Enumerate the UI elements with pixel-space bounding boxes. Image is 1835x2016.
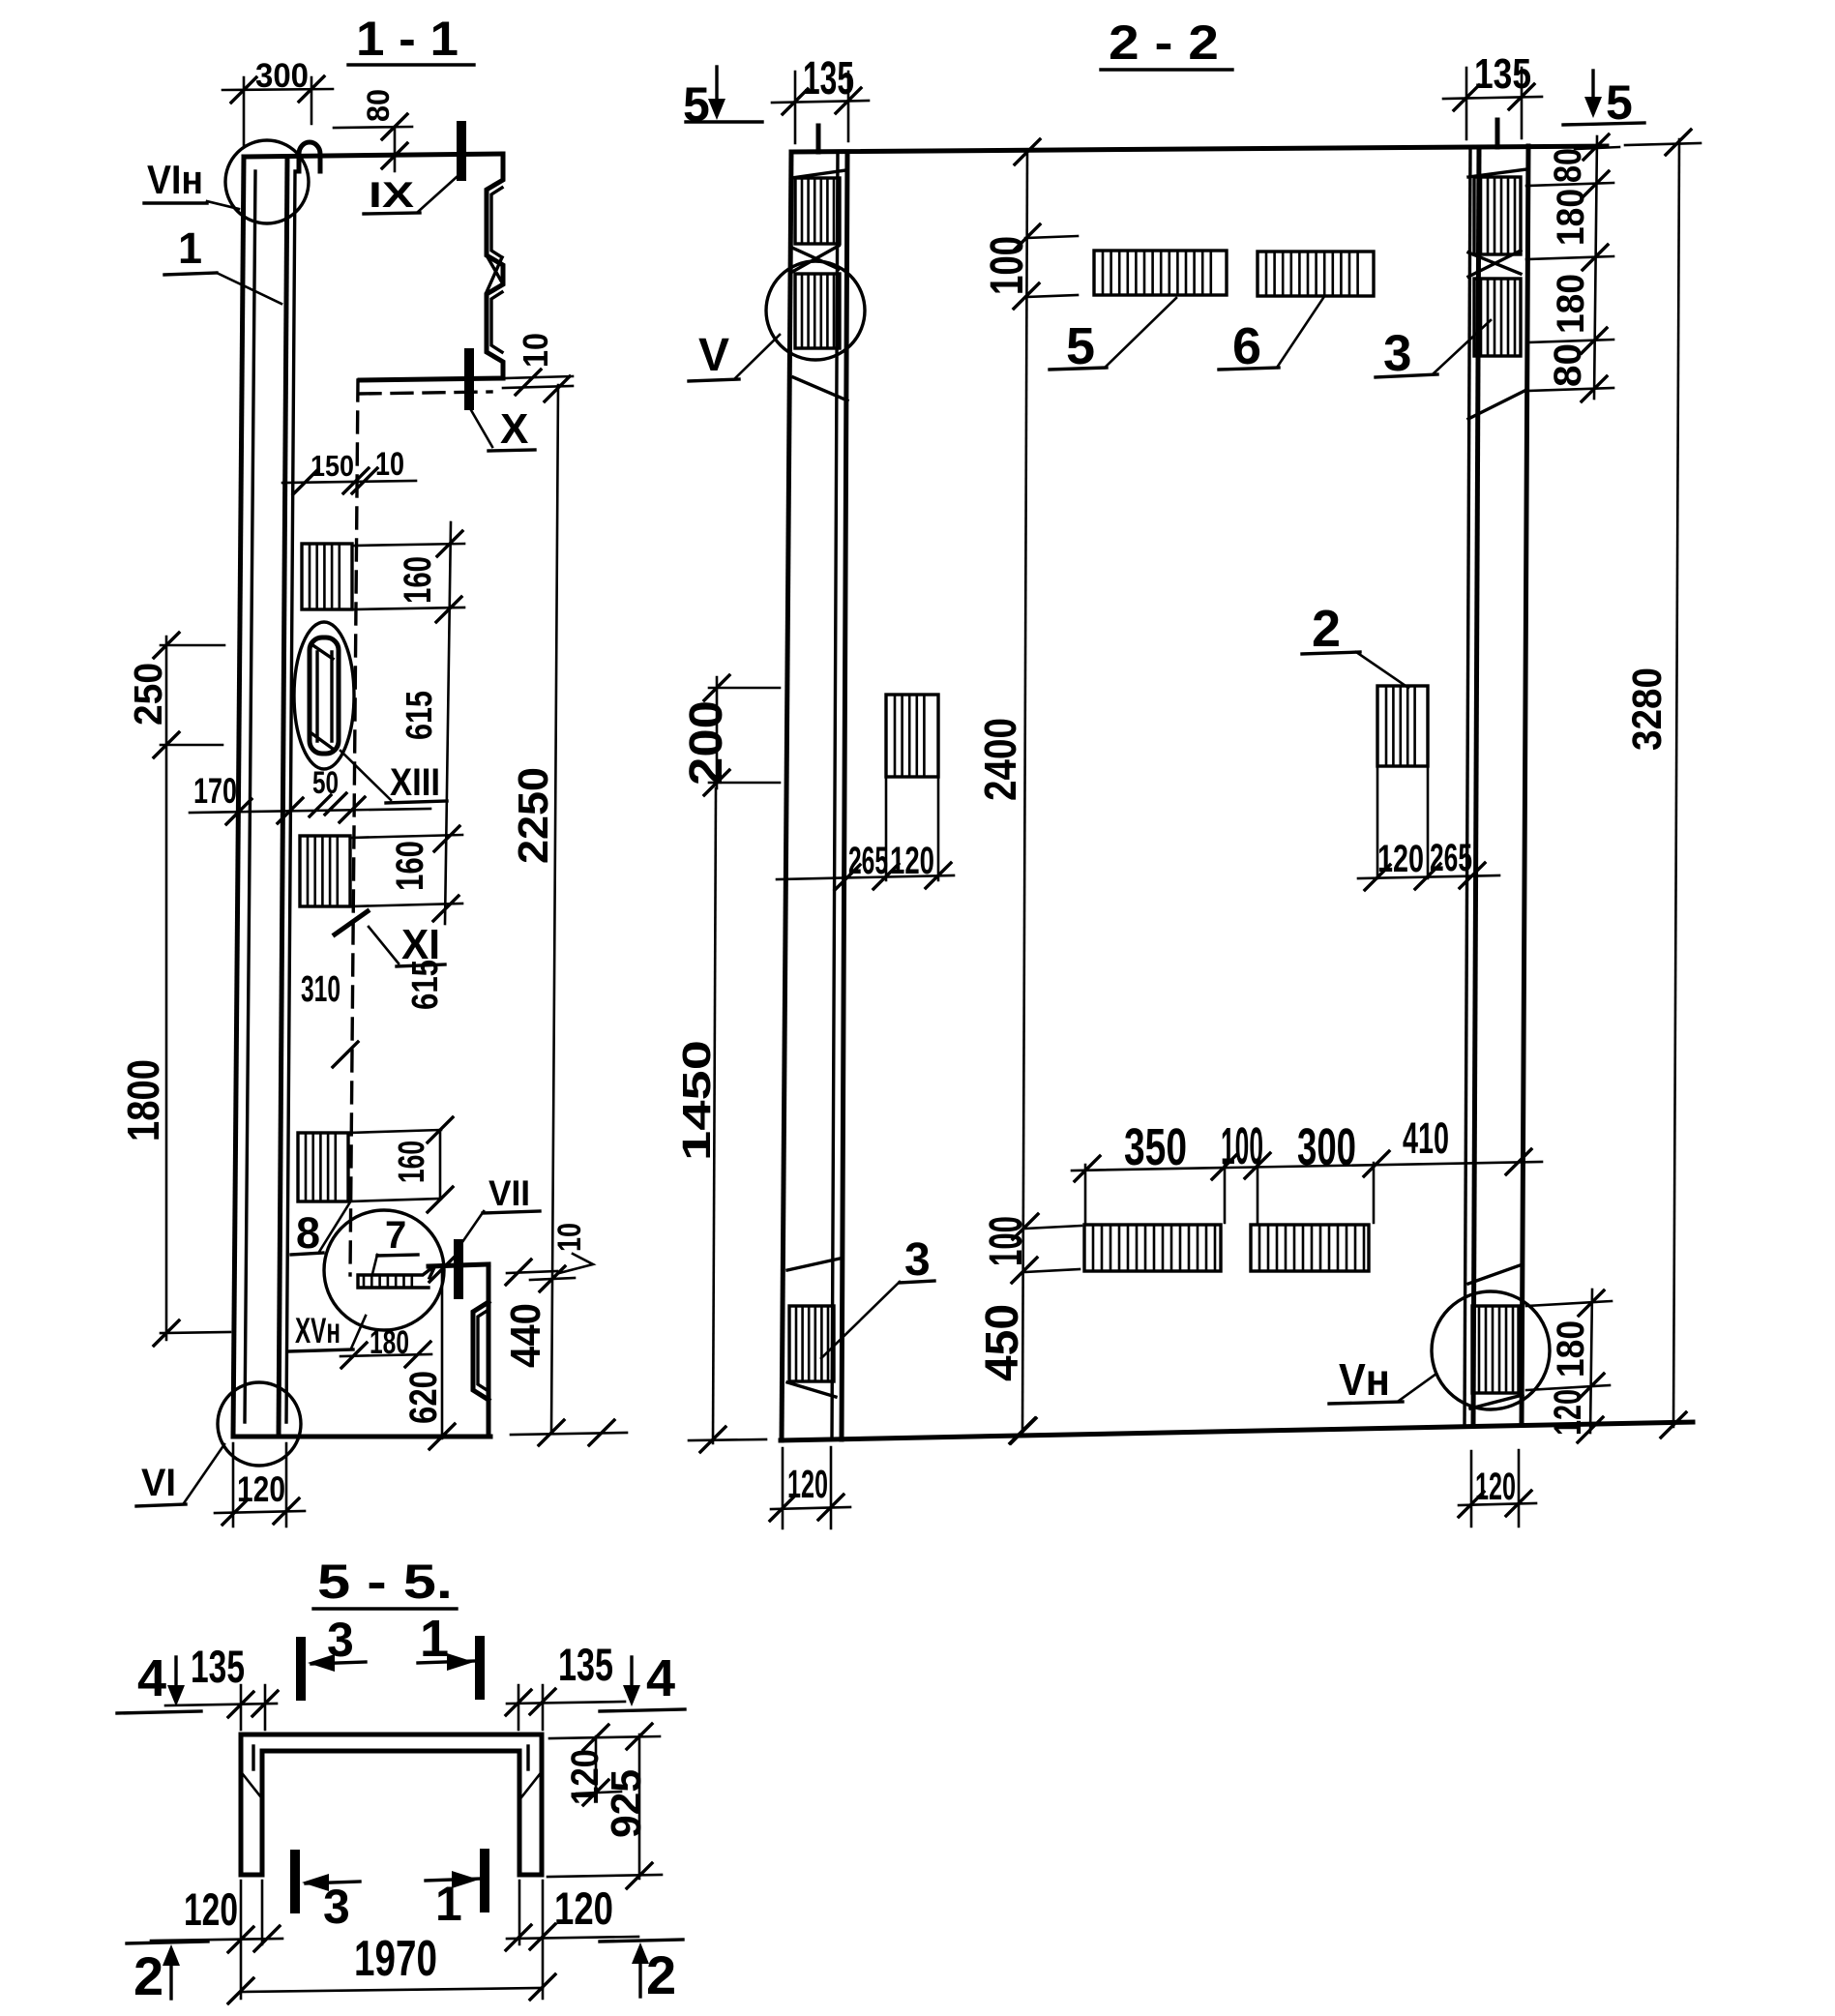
svg-text:300: 300 bbox=[1297, 1118, 1356, 1176]
svg-text:300: 300 bbox=[255, 57, 309, 95]
svg-text:80: 80 bbox=[361, 89, 396, 122]
svg-text:310: 310 bbox=[301, 969, 340, 1010]
svg-text:5 - 5.: 5 - 5. bbox=[317, 1555, 453, 1609]
svg-text:1450: 1450 bbox=[674, 1040, 719, 1161]
svg-text:925: 925 bbox=[603, 1769, 650, 1838]
svg-text:620: 620 bbox=[402, 1371, 445, 1424]
svg-text:120: 120 bbox=[890, 840, 934, 882]
svg-text:135: 135 bbox=[558, 1639, 613, 1690]
svg-text:135: 135 bbox=[803, 53, 854, 104]
svg-text:4: 4 bbox=[137, 1649, 166, 1707]
svg-text:XVн: XVн bbox=[295, 1311, 340, 1350]
svg-text:2 - 2: 2 - 2 bbox=[1109, 15, 1219, 70]
svg-text:160: 160 bbox=[397, 556, 439, 604]
svg-text:250: 250 bbox=[126, 663, 170, 726]
svg-text:3280: 3280 bbox=[1624, 667, 1671, 751]
svg-text:440: 440 bbox=[502, 1303, 549, 1368]
svg-text:10: 10 bbox=[375, 446, 404, 483]
svg-text:450: 450 bbox=[977, 1304, 1028, 1381]
svg-text:8: 8 bbox=[296, 1208, 320, 1258]
svg-text:410: 410 bbox=[1403, 1113, 1449, 1163]
svg-text:100: 100 bbox=[982, 236, 1033, 295]
svg-text:XIII: XIII bbox=[390, 761, 440, 804]
svg-text:120: 120 bbox=[564, 1749, 607, 1805]
svg-text:615: 615 bbox=[400, 691, 440, 740]
svg-text:2: 2 bbox=[646, 1944, 676, 2005]
svg-text:200: 200 bbox=[681, 700, 732, 786]
svg-text:120: 120 bbox=[787, 1462, 828, 1506]
svg-text:10: 10 bbox=[516, 333, 555, 368]
svg-text:80: 80 bbox=[1547, 343, 1589, 387]
svg-text:120: 120 bbox=[237, 1469, 285, 1509]
svg-text:350: 350 bbox=[1124, 1118, 1187, 1176]
svg-text:120: 120 bbox=[1547, 1389, 1589, 1436]
svg-text:3: 3 bbox=[904, 1234, 931, 1286]
svg-text:10: 10 bbox=[551, 1223, 588, 1252]
svg-text:160: 160 bbox=[389, 841, 431, 891]
svg-text:120: 120 bbox=[1475, 1466, 1516, 1508]
svg-text:80: 80 bbox=[1547, 148, 1589, 183]
svg-text:2: 2 bbox=[133, 1945, 163, 2006]
svg-text:180: 180 bbox=[1550, 274, 1592, 334]
svg-text:2250: 2250 bbox=[510, 767, 557, 864]
svg-text:170: 170 bbox=[193, 771, 237, 811]
svg-text:6: 6 bbox=[1232, 317, 1261, 375]
svg-text:3: 3 bbox=[1383, 325, 1411, 382]
svg-text:7: 7 bbox=[385, 1214, 406, 1257]
svg-text:100: 100 bbox=[981, 1216, 1032, 1266]
svg-text:VII: VII bbox=[488, 1173, 530, 1213]
svg-text:265: 265 bbox=[1430, 837, 1472, 879]
svg-text:VI: VI bbox=[141, 1462, 176, 1504]
svg-text:1800: 1800 bbox=[118, 1059, 168, 1141]
svg-text:1970: 1970 bbox=[354, 1931, 437, 1987]
svg-text:120: 120 bbox=[1377, 838, 1424, 880]
svg-text:IX: IX bbox=[369, 175, 414, 215]
svg-text:150: 150 bbox=[311, 449, 354, 483]
svg-text:5: 5 bbox=[1606, 75, 1633, 130]
svg-text:265: 265 bbox=[848, 840, 888, 882]
svg-text:V: V bbox=[698, 330, 729, 381]
svg-text:2: 2 bbox=[1312, 600, 1341, 658]
svg-text:Vн: Vн bbox=[1339, 1354, 1390, 1405]
svg-text:50: 50 bbox=[312, 765, 339, 800]
svg-text:2400: 2400 bbox=[975, 718, 1025, 801]
svg-text:4: 4 bbox=[646, 1649, 675, 1707]
svg-text:X: X bbox=[500, 405, 528, 453]
svg-text:135: 135 bbox=[1474, 50, 1531, 98]
svg-text:160: 160 bbox=[392, 1141, 432, 1183]
svg-text:1: 1 bbox=[178, 223, 202, 273]
svg-text:VIн: VIн bbox=[147, 157, 203, 202]
svg-text:1 - 1: 1 - 1 bbox=[356, 12, 459, 66]
svg-text:180: 180 bbox=[1550, 1320, 1592, 1378]
svg-text:100: 100 bbox=[1221, 1117, 1263, 1175]
svg-text:120: 120 bbox=[184, 1883, 238, 1935]
svg-text:1: 1 bbox=[420, 1610, 449, 1668]
svg-text:615: 615 bbox=[405, 960, 446, 1010]
svg-text:135: 135 bbox=[191, 1641, 245, 1692]
svg-text:120: 120 bbox=[554, 1883, 613, 1934]
svg-text:180: 180 bbox=[1550, 189, 1592, 246]
